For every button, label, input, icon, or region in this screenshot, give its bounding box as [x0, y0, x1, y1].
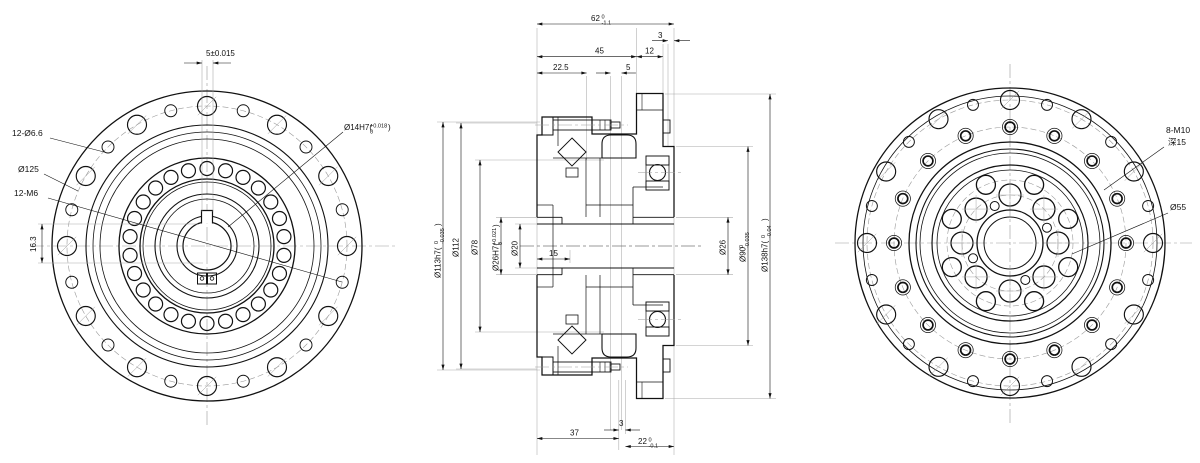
dim-12: 12: [645, 47, 654, 56]
dim-5: 5: [626, 63, 631, 72]
svg-text:0: 0: [370, 129, 373, 135]
dim-37: 37: [570, 429, 579, 438]
flexspline-lobe-bottom: [602, 334, 636, 357]
svg-text:Ø14H7(: Ø14H7(: [344, 123, 372, 132]
svg-text:22: 22: [638, 437, 647, 446]
svg-text:Ø113h7(: Ø113h7(: [434, 247, 443, 278]
wave-generator-section-bottom: [558, 326, 586, 354]
dim-45: 45: [595, 47, 604, 56]
flexspline-lobe-top: [602, 135, 636, 158]
drawing-sheet: 5±0.015 16.3 12-Ø6.6 Ø125 12-M6 Ø14H7( +…: [0, 0, 1200, 463]
dim-3-bottom: 3: [619, 419, 624, 428]
leader-tapped-holes: [1104, 147, 1164, 190]
svg-text:): ): [434, 223, 443, 226]
svg-text:): ): [388, 123, 391, 132]
svg-text:-0.035: -0.035: [745, 232, 751, 248]
svg-text:-0.035: -0.035: [440, 228, 446, 244]
screw-section-top: [535, 117, 628, 135]
leader-inner-holes: [48, 198, 342, 282]
dim-138: Ø138h7( 0 -0.04 ): [761, 218, 773, 272]
svg-text:-0.04: -0.04: [767, 225, 773, 238]
label-tapped-holes: 8-M10: [1166, 125, 1190, 135]
front-view: 5±0.015 16.3 12-Ø6.6 Ø125 12-M6 Ø14H7( +…: [12, 49, 396, 426]
svg-text:0: 0: [498, 242, 504, 245]
dim-78: Ø78: [471, 239, 480, 255]
dim-113: Ø113h7( 0 -0.035 ): [434, 223, 446, 278]
leader-bolt-circle: [44, 174, 78, 191]
label-outer-holes: 12-Ø6.6: [12, 128, 43, 138]
svg-text:): ): [761, 218, 770, 221]
section-outline-top: [537, 94, 674, 218]
dim-overall-width: 62 0 -1.1: [591, 14, 611, 26]
label-tapped-depth: 深15: [1168, 137, 1186, 147]
dim-90: Ø90 0 -0.035: [739, 232, 751, 262]
svg-text:Ø138h7(: Ø138h7(: [761, 241, 770, 272]
screw-section-bottom: [535, 357, 628, 375]
section-view: 62 0 -1.1 3 45 12 22.5 5 3 37 22 0 -0.1 …: [434, 14, 777, 455]
label-bolt-circle: Ø125: [18, 164, 39, 174]
dim-112: Ø112: [452, 237, 461, 257]
label-inner-holes: 12-M6: [14, 188, 38, 198]
leader-outer-holes: [50, 138, 104, 152]
svg-text:-0.1: -0.1: [649, 443, 659, 449]
dim-3-top: 3: [658, 31, 663, 40]
svg-text:Ø26H7(: Ø26H7(: [492, 243, 501, 271]
dim-22-5: 22.5: [553, 63, 569, 72]
dim-22: 22 0 -0.1: [638, 437, 658, 449]
back-view: 8-M10 深15 Ø55: [835, 64, 1192, 424]
svg-text:62: 62: [591, 14, 600, 23]
output-bearing-bottom: [638, 302, 684, 336]
dim-26-right: Ø26: [719, 239, 728, 255]
dim-15: 15: [549, 249, 558, 258]
dim-keyway-width: 5±0.015: [206, 49, 235, 58]
engineering-drawing: 5±0.015 16.3 12-Ø6.6 Ø125 12-M6 Ø14H7( +…: [0, 0, 1200, 463]
svg-text:): ): [492, 224, 501, 227]
dim-26H7: Ø26H7( +0.021 0 ): [492, 224, 504, 271]
section-outline-bottom: [537, 275, 674, 399]
dim-20: Ø20: [511, 240, 520, 256]
svg-text:-1.1: -1.1: [602, 20, 612, 26]
dim-bore: Ø14H7( +0.018 0 ): [344, 123, 391, 135]
wave-generator-section-top: [558, 138, 586, 166]
dim-keyway-depth: 16.3: [29, 236, 38, 252]
label-d55: Ø55: [1170, 202, 1186, 212]
output-bearing-top: [638, 156, 684, 190]
